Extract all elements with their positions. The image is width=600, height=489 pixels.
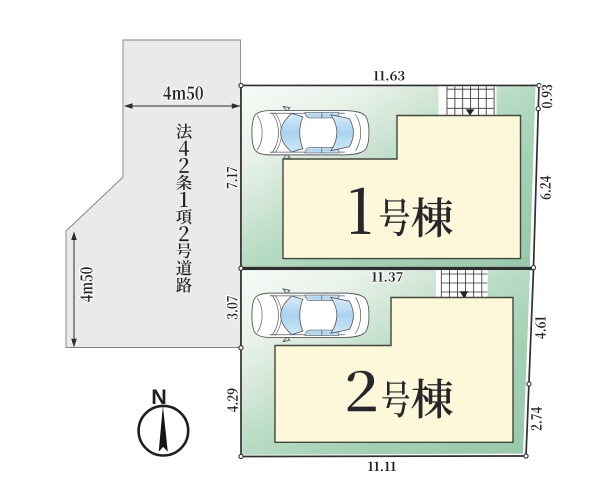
svg-text:N: N	[151, 385, 167, 409]
